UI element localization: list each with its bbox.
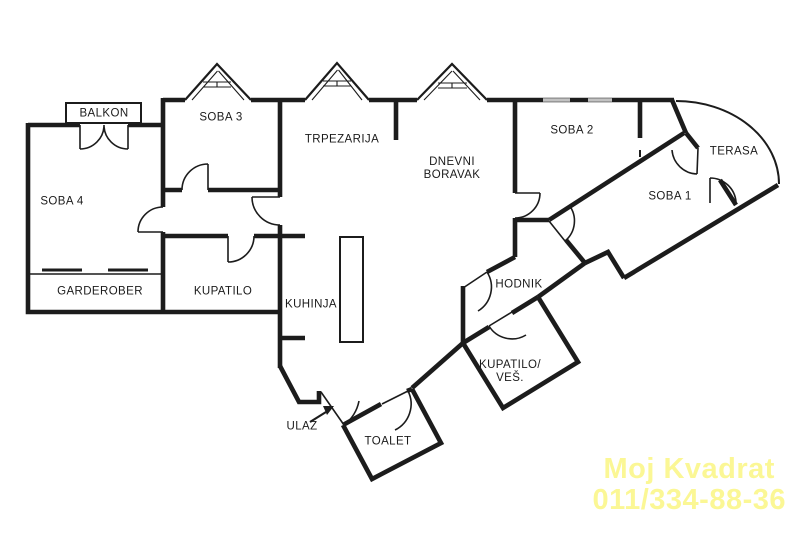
bay-window-icon bbox=[185, 64, 251, 100]
room-label-kuhinja: KUHINJA bbox=[285, 298, 337, 311]
bay-window-icon bbox=[305, 63, 369, 100]
room-label-balkon: BALKON bbox=[79, 107, 128, 120]
room-label-garderober: GARDEROBER bbox=[57, 285, 143, 298]
wall-entrance-step bbox=[280, 366, 319, 402]
wall-soba1-northwest bbox=[549, 133, 684, 220]
wall-toalet bbox=[343, 389, 441, 479]
room-label-terasa: TERASA bbox=[710, 145, 758, 158]
room-label-dnevni-boravak: DNEVNI BORAVAK bbox=[424, 156, 481, 182]
watermark: Moj Kvadrat 011/334-88-36 bbox=[592, 454, 786, 515]
room-label-soba-1: SOBA 1 bbox=[648, 190, 691, 203]
wall-southeast-exterior bbox=[624, 185, 778, 278]
door-dnevni-hodnik bbox=[463, 272, 491, 311]
watermark-phone: 011/334-88-36 bbox=[592, 485, 786, 515]
wall-hall-southeast bbox=[412, 343, 463, 388]
wall-hodnik-southeast bbox=[538, 263, 585, 297]
wall-kupatilo-ves bbox=[463, 297, 578, 408]
room-label-toalet: TOALET bbox=[365, 435, 412, 448]
room-label-soba-2: SOBA 2 bbox=[550, 124, 593, 137]
room-label-hodnik: HODNIK bbox=[495, 278, 542, 291]
bay-windows-layer bbox=[185, 63, 487, 100]
doors-layer bbox=[80, 125, 736, 430]
room-label-soba-3: SOBA 3 bbox=[199, 111, 242, 124]
bay-window-icon bbox=[417, 64, 487, 100]
door-kupatilo bbox=[228, 236, 254, 262]
door-soba4 bbox=[138, 207, 163, 232]
room-label-kupatilo: KUPATILO bbox=[194, 285, 252, 298]
wall-soba1-southwest bbox=[566, 240, 585, 263]
floor-plan-page: BALKONSOBA 3SOBA 4GARDEROBERKUPATILOTRPE… bbox=[0, 0, 800, 533]
wall-topright-diagonal bbox=[672, 100, 686, 133]
room-label-ulaz: ULAZ bbox=[287, 420, 318, 433]
wall-dnevni-hodnik-divider bbox=[487, 257, 515, 272]
room-label-soba-4: SOBA 4 bbox=[40, 195, 83, 208]
wall-soba1-south-jog bbox=[585, 252, 624, 278]
door-soba3 bbox=[182, 164, 208, 190]
room-label-trpezarija: TRPEZARIJA bbox=[305, 133, 379, 146]
door-kupatilo-ves bbox=[489, 312, 526, 339]
door-toalet bbox=[382, 391, 411, 430]
kitchen-counter bbox=[340, 237, 363, 342]
door-corridor bbox=[252, 197, 280, 225]
wall-soba4-left-bottom bbox=[28, 123, 282, 312]
wall-terasa-soba1 bbox=[686, 133, 736, 205]
room-label-kupatilo-ves: KUPATILO/ VEŠ. bbox=[479, 359, 541, 385]
door-balkon bbox=[80, 125, 128, 149]
watermark-brand: Moj Kvadrat bbox=[592, 454, 786, 484]
door-soba2 bbox=[515, 193, 540, 218]
